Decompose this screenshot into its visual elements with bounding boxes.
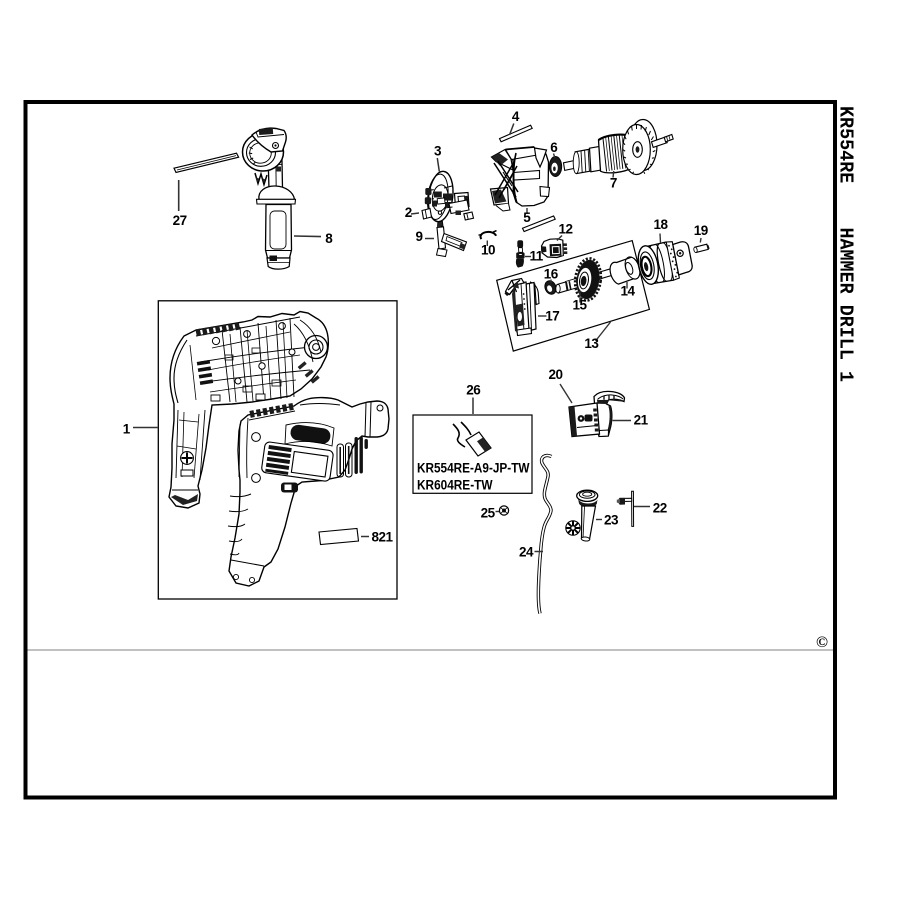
svg-text:7: 7	[610, 176, 618, 191]
svg-text:18: 18	[653, 217, 668, 232]
svg-text:24: 24	[519, 545, 534, 560]
svg-text:22: 22	[653, 501, 667, 516]
svg-text:17: 17	[545, 309, 559, 324]
svg-text:15: 15	[572, 298, 587, 313]
svg-text:12: 12	[558, 222, 572, 237]
svg-text:16: 16	[544, 267, 559, 282]
svg-text:6: 6	[550, 140, 558, 155]
svg-text:821: 821	[371, 530, 393, 545]
svg-text:11: 11	[530, 249, 544, 264]
svg-text:KR554RE-A9-JP-TW: KR554RE-A9-JP-TW	[417, 461, 530, 476]
svg-text:©: ©	[816, 634, 828, 651]
svg-text:25: 25	[481, 506, 496, 521]
svg-text:8: 8	[325, 231, 333, 246]
svg-text:KR604RE-TW: KR604RE-TW	[417, 477, 493, 492]
svg-text:20: 20	[548, 367, 562, 382]
svg-text:23: 23	[604, 513, 619, 528]
svg-text:1: 1	[123, 422, 131, 437]
svg-text:21: 21	[634, 413, 649, 428]
svg-text:14: 14	[620, 284, 635, 299]
svg-text:5: 5	[523, 210, 531, 225]
svg-text:19: 19	[694, 223, 708, 238]
svg-text:26: 26	[466, 383, 481, 398]
svg-text:27: 27	[173, 213, 187, 228]
svg-text:4: 4	[512, 109, 520, 124]
svg-text:13: 13	[584, 336, 599, 351]
svg-text:10: 10	[481, 243, 495, 258]
svg-text:2: 2	[405, 205, 413, 220]
svg-text:3: 3	[434, 144, 442, 159]
svg-text:KR554RE HAMMER DRILL 1: KR554RE HAMMER DRILL 1	[835, 106, 857, 382]
svg-text:9: 9	[416, 229, 424, 244]
